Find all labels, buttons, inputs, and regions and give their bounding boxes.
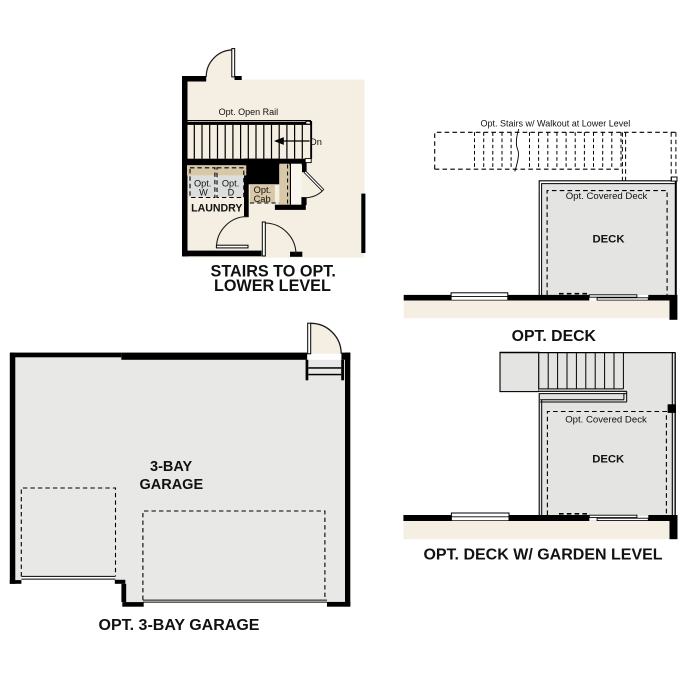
svg-text:Dn: Dn	[310, 137, 322, 147]
svg-text:OPT. DECK: OPT. DECK	[512, 328, 597, 345]
svg-text:Opt. Stairs w/ Walkout at Lowe: Opt. Stairs w/ Walkout at Lower Level	[481, 119, 631, 129]
svg-text:Opt. Covered Deck: Opt. Covered Deck	[565, 415, 647, 426]
svg-text:DECK: DECK	[592, 234, 625, 246]
svg-text:Cab: Cab	[254, 194, 271, 204]
svg-text:W: W	[199, 188, 208, 198]
svg-text:LAUNDRY: LAUNDRY	[191, 202, 242, 214]
svg-text:Opt. Covered Deck: Opt. Covered Deck	[566, 191, 648, 202]
svg-text:LOWER LEVEL: LOWER LEVEL	[214, 277, 331, 295]
svg-text:Opt. Open Rail: Opt. Open Rail	[219, 107, 279, 117]
svg-text:GARAGE: GARAGE	[139, 477, 203, 493]
svg-text:D: D	[228, 188, 235, 198]
svg-text:3-BAY: 3-BAY	[150, 459, 193, 475]
svg-text:DECK: DECK	[592, 453, 625, 465]
svg-text:OPT. 3-BAY GARAGE: OPT. 3-BAY GARAGE	[99, 617, 260, 634]
svg-text:OPT. DECK W/ GARDEN LEVEL: OPT. DECK W/ GARDEN LEVEL	[423, 547, 662, 564]
